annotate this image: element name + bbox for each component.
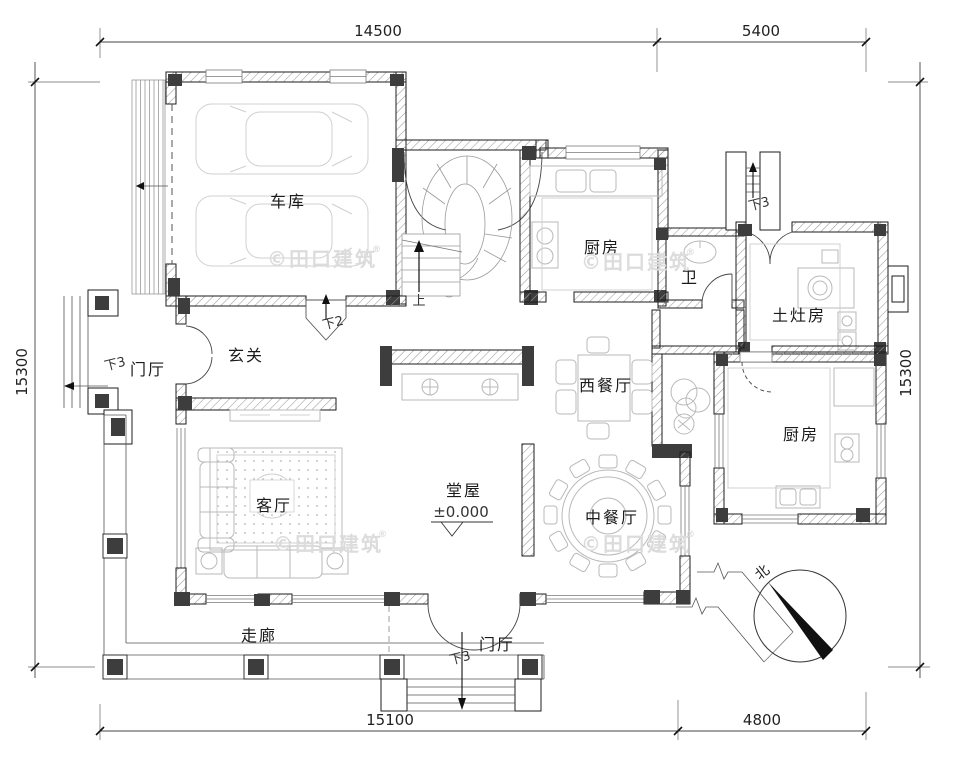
room-label-garage: 车库 bbox=[270, 192, 306, 211]
floor-plan-canvas: 14500 5400 15300 15300 15100 4800 bbox=[0, 0, 960, 765]
kitchen-right-room: 厨房 bbox=[714, 352, 886, 524]
room-label-living: 客厅 bbox=[256, 496, 292, 515]
level-mark: ±0.000 bbox=[433, 503, 489, 521]
room-label-foyer-bottom: 门厅 bbox=[479, 635, 515, 654]
veranda-column bbox=[244, 655, 268, 679]
room-label-chinese-dining: 中餐厅 bbox=[585, 508, 639, 527]
south-wall bbox=[174, 590, 690, 660]
foyer-left: 下3 门厅 bbox=[64, 290, 166, 444]
stove-room: 土灶房 bbox=[736, 222, 908, 354]
screen-wall bbox=[380, 346, 534, 400]
watermark-reg: ® bbox=[686, 248, 695, 258]
chinese-dining-room: 中餐厅 bbox=[544, 452, 690, 604]
kitchen-top-room: 厨房 bbox=[520, 140, 668, 302]
porch-top-right: 下3 bbox=[726, 152, 780, 230]
dim-top-right: 5400 bbox=[742, 22, 780, 40]
dim-bottom-main: 15100 bbox=[366, 711, 414, 729]
porch-bottom: 下3 门厅 bbox=[381, 632, 541, 711]
floor-plan-page: 14500 5400 15300 15300 15100 4800 bbox=[0, 0, 960, 765]
watermark-text: ©田口建筑 bbox=[581, 250, 691, 274]
watermark-reg: ® bbox=[686, 530, 695, 540]
main-hall: 堂屋 ±0.000 bbox=[431, 444, 534, 556]
living-room: 客厅 bbox=[196, 448, 348, 578]
watermark-text: ©田口建筑 bbox=[273, 532, 383, 556]
watermark-text: ©田口建筑 bbox=[267, 247, 377, 271]
car-icon bbox=[196, 104, 368, 174]
stair-flight bbox=[402, 234, 462, 296]
watermark-reg: ® bbox=[372, 245, 381, 255]
room-label-west-dining: 西餐厅 bbox=[579, 376, 633, 395]
dim-left: 15300 bbox=[13, 348, 31, 396]
west-dining-room: 西餐厅 bbox=[556, 337, 652, 439]
boundary-break-lines bbox=[676, 563, 793, 662]
room-label-kitchen-right: 厨房 bbox=[783, 425, 819, 444]
plant-icon bbox=[671, 379, 710, 434]
room-label-corridor: 走廊 bbox=[241, 626, 277, 645]
steps-down2-marker: 下2 bbox=[306, 294, 346, 340]
level-symbol-icon bbox=[431, 522, 493, 536]
room-label-main-hall: 堂屋 bbox=[446, 481, 482, 500]
room-label-foyer-left: 门厅 bbox=[130, 360, 166, 379]
room-label-stove-room: 土灶房 bbox=[772, 306, 826, 325]
stairs-up-label: 上 bbox=[412, 294, 425, 309]
veranda-column bbox=[518, 655, 542, 679]
garage-ramp bbox=[132, 80, 165, 294]
dim-top-main: 14500 bbox=[354, 22, 402, 40]
steps-down3-bottom-label: 下3 bbox=[448, 649, 472, 669]
dim-right: 15300 bbox=[897, 349, 915, 397]
veranda-column bbox=[103, 534, 127, 558]
room-label-entry-hall: 玄关 bbox=[228, 346, 264, 365]
watermark-text: ©田口建筑 bbox=[581, 532, 691, 556]
north-compass-icon: 北 bbox=[752, 562, 846, 662]
veranda-column bbox=[380, 655, 404, 679]
watermark-reg: ® bbox=[378, 530, 387, 540]
steps-down3-left-label: 下3 bbox=[103, 355, 127, 375]
dim-bottom-right: 4800 bbox=[743, 711, 781, 729]
north-label: 北 bbox=[752, 562, 773, 583]
veranda-column bbox=[103, 655, 127, 679]
stove-island bbox=[750, 244, 856, 350]
